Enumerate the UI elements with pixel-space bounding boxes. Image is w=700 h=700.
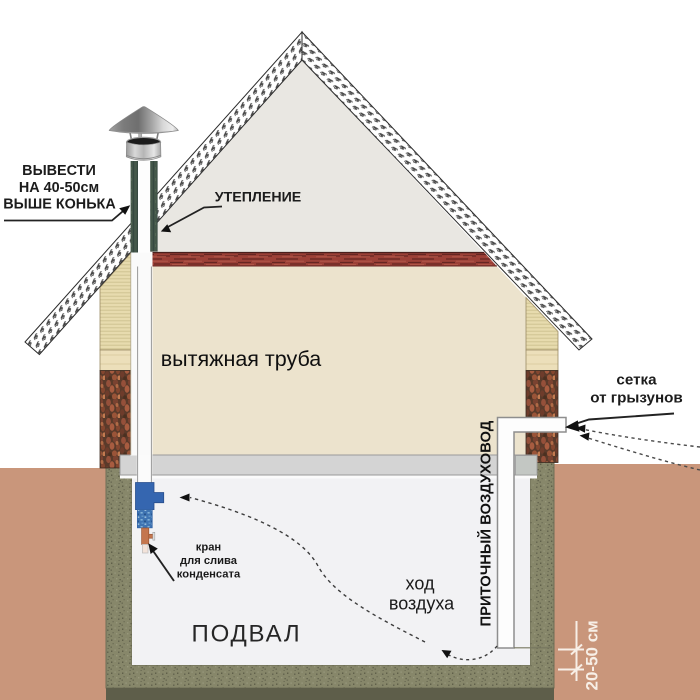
svg-text:от грызунов: от грызунов (590, 390, 683, 407)
svg-text:ПОДВАЛ: ПОДВАЛ (192, 621, 302, 648)
svg-text:ВЫШЕ КОНЬКА: ВЫШЕ КОНЬКА (3, 197, 116, 213)
svg-text:20-50 см: 20-50 см (583, 620, 602, 690)
svg-text:НА 40-50см: НА 40-50см (19, 180, 99, 196)
svg-text:воздуха: воздуха (389, 594, 455, 614)
svg-text:ход: ход (406, 574, 435, 594)
svg-text:вытяжная труба: вытяжная труба (161, 347, 322, 371)
svg-text:конденсата: конденсата (177, 569, 241, 581)
svg-text:сетка: сетка (616, 372, 657, 389)
svg-text:для слива: для слива (180, 555, 238, 567)
svg-text:УТЕПЛЕНИЕ: УТЕПЛЕНИЕ (215, 190, 301, 206)
svg-text:ПРИТОЧНЫЙ ВОЗДУХОВОД: ПРИТОЧНЫЙ ВОЗДУХОВОД (477, 420, 495, 626)
svg-text:ВЫВЕСТИ: ВЫВЕСТИ (22, 163, 96, 179)
svg-text:кран: кран (196, 542, 221, 554)
